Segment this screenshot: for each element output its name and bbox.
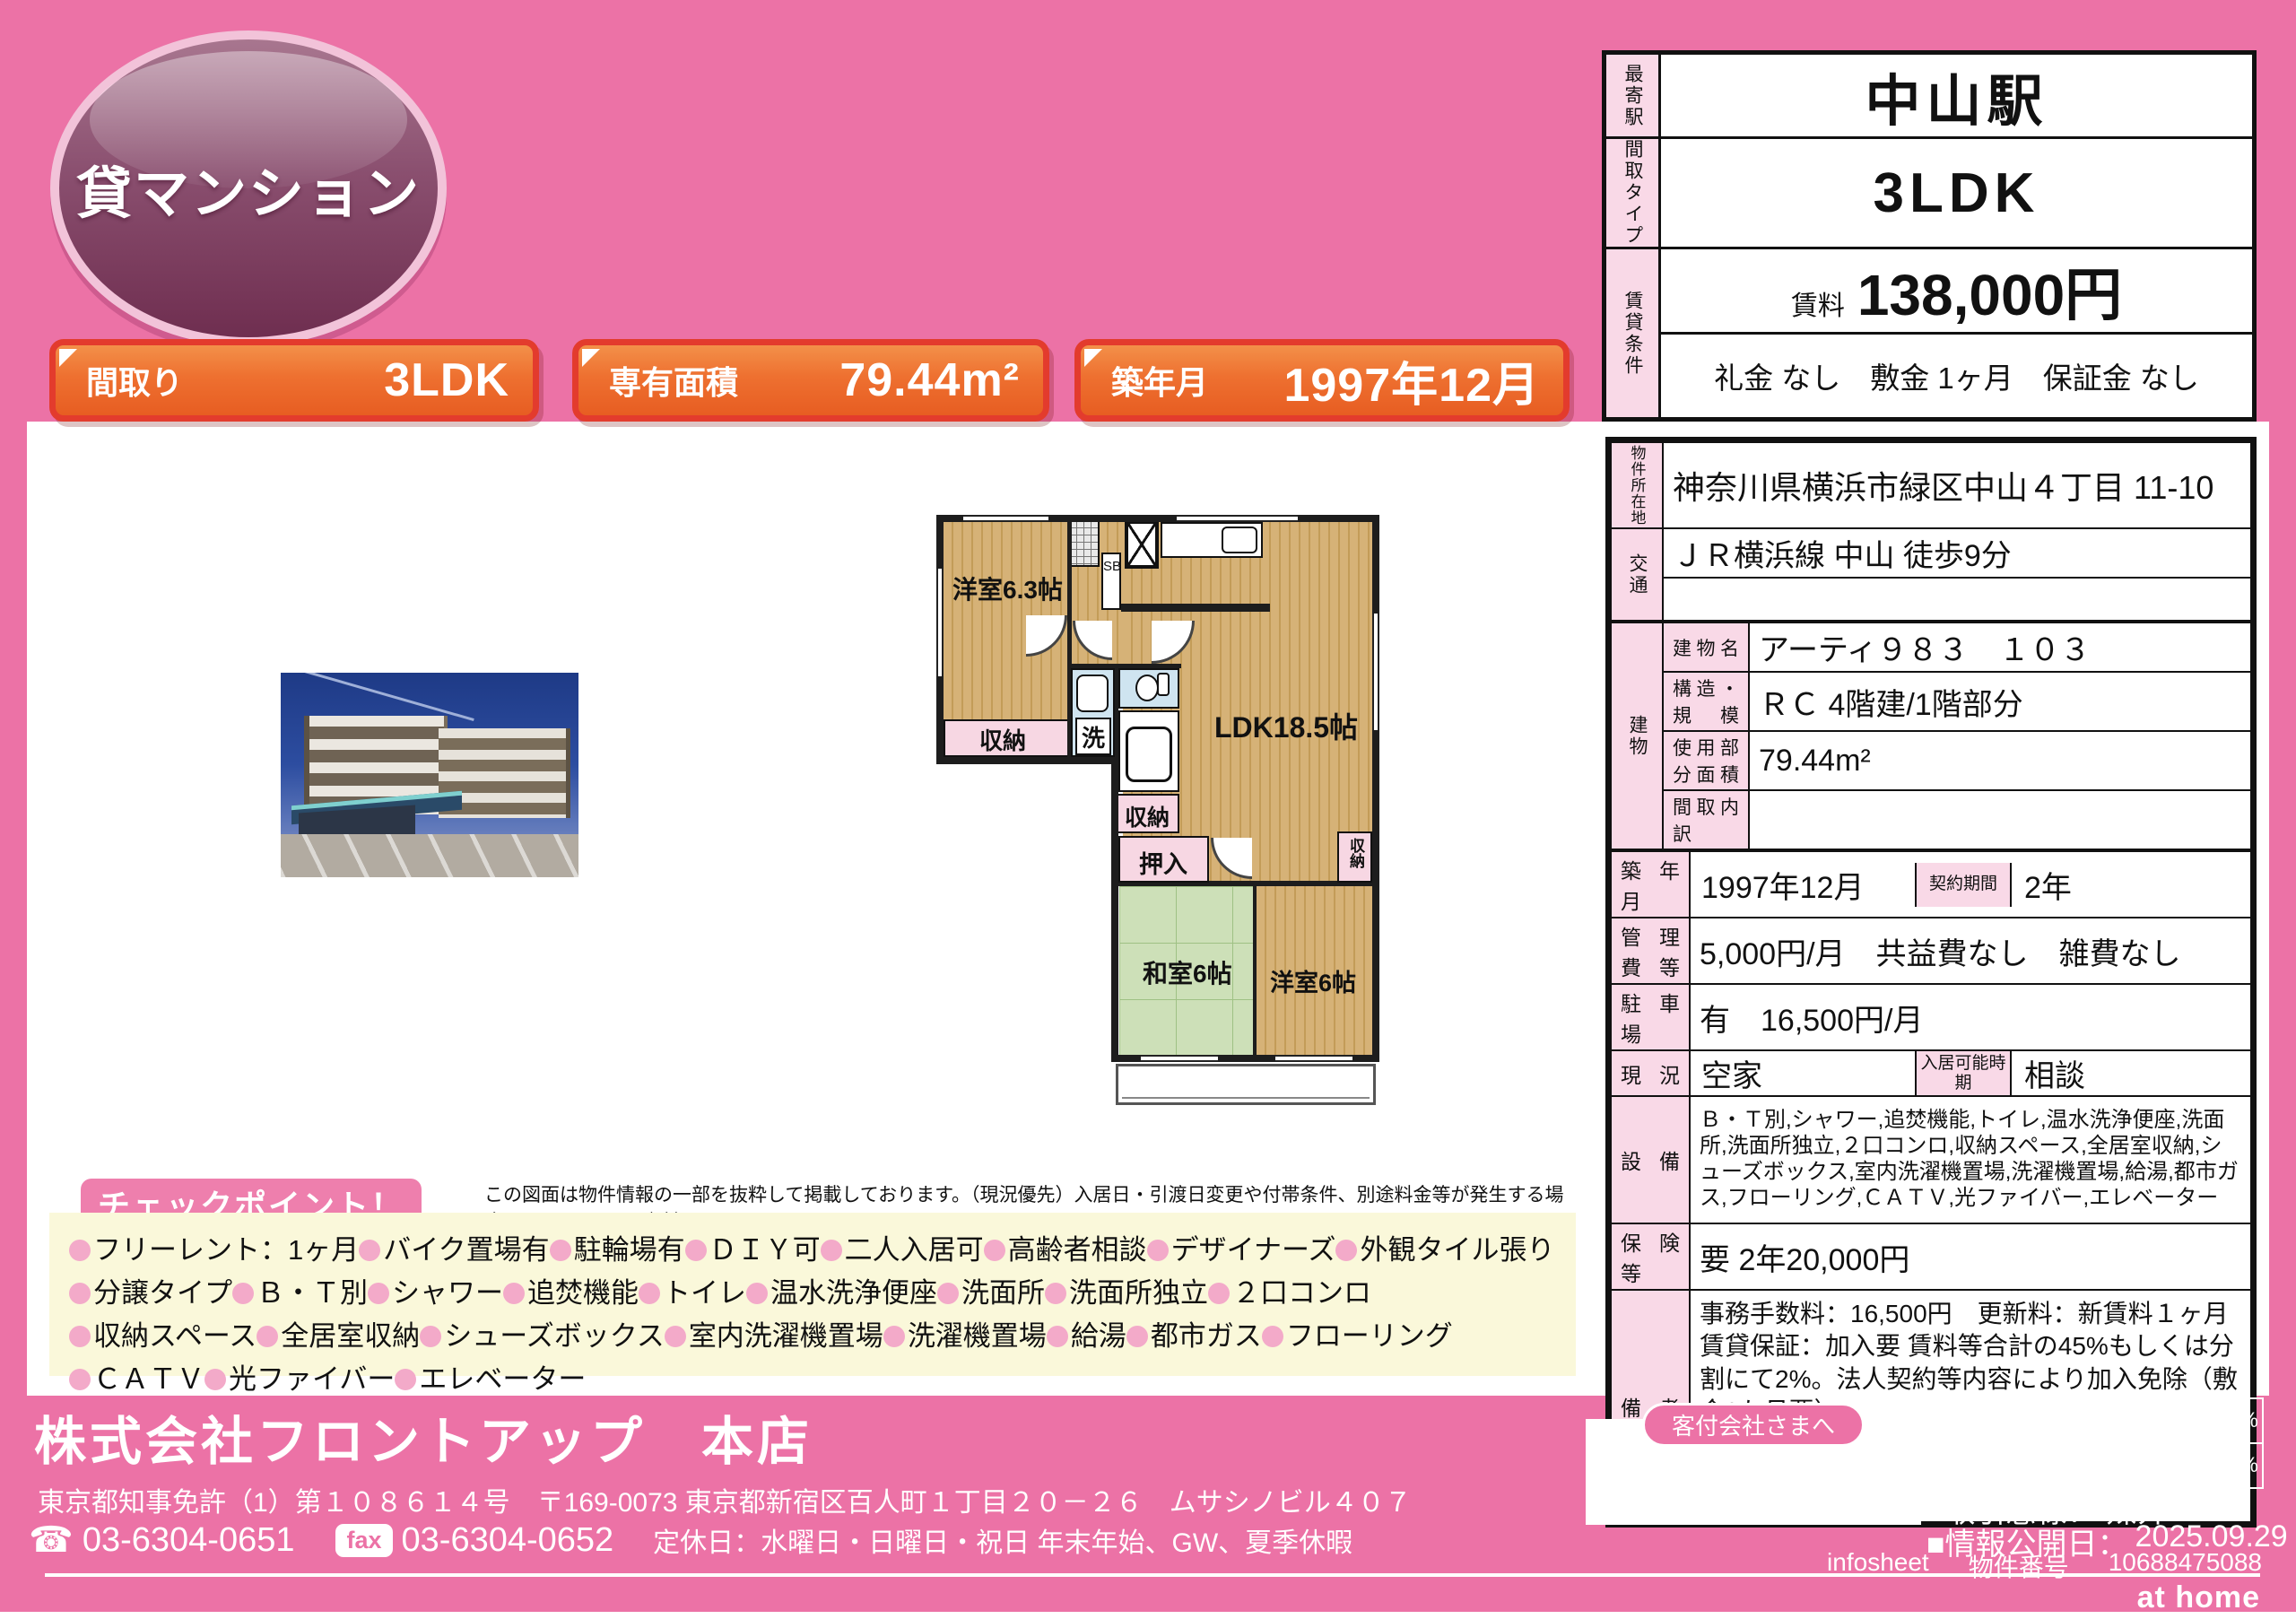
row-building-name: 建物 建物名 アーティ９８３ １０３ (1611, 622, 2251, 672)
bullet-dot-icon (232, 1283, 254, 1304)
status-label: 現況 (1611, 1050, 1690, 1096)
fp-toilet-tank (1157, 673, 1170, 696)
bullet-dot-icon (665, 1326, 686, 1347)
built-label: 築年月 (1611, 851, 1690, 918)
fp-wall (1372, 515, 1379, 1062)
row-equipment: 設備 Ｂ・Ｔ別,シャワー,追焚機能,トイレ,温水洗浄便座,洗面所,洗面所独立,２… (1611, 1096, 2251, 1223)
bullet-dot-icon (1262, 1326, 1283, 1347)
fp-oshiire-label: 押入 (1139, 845, 1187, 880)
company-name: 株式会社フロントアップ 本店 (34, 1399, 813, 1475)
structure-label: 構造・規模 (1663, 672, 1749, 731)
bullet-dot-icon (69, 1283, 91, 1304)
bullet-dot-icon (69, 1369, 91, 1390)
fp-ldk-label: LDK18.5帖 (1214, 705, 1358, 746)
fee-row-burden: 客付手数料負担の割合 貸主 0% 借主 100% (1965, 1398, 2263, 1443)
summary-station-label: 最寄駅 (1605, 53, 1660, 138)
equipment-value: Ｂ・Ｔ別,シャワー,追焚機能,トイレ,温水洗浄便座,洗面所,洗面所独立,２口コン… (1690, 1096, 2251, 1223)
checkpoint-item: 洗濯機置場 (883, 1320, 1047, 1352)
structure-value: ＲＣ 4階建/1階部分 (1749, 672, 2251, 731)
fp-window (1177, 515, 1298, 522)
fp-window (1275, 1055, 1352, 1062)
checkpoint-item: 駐輪場有 (550, 1234, 685, 1266)
insurance-value: 要 2年20,000円 (1690, 1223, 2251, 1290)
bullet-dot-icon (1335, 1240, 1357, 1261)
holidays-text: 定休日：水曜日・日曜日・祝日 年末年始、GW、夏季休暇 (653, 1520, 1352, 1560)
bullet-dot-icon (821, 1240, 842, 1261)
checkpoint-item: ＤＩＹ可 (685, 1234, 821, 1266)
bullet-dot-icon (420, 1326, 441, 1347)
checkpoint-item: 追焚機能 (503, 1277, 639, 1309)
movein-label: 入居可能時期 (1915, 1051, 2012, 1095)
corner-fold (1084, 349, 1102, 367)
status-value: 空家 (1691, 1051, 1915, 1095)
bullet-dot-icon (395, 1369, 416, 1390)
checkpoint-item: Ｂ・Ｔ別 (232, 1277, 368, 1309)
row-access-2 (1611, 578, 2251, 621)
checkpoint-items: フリーレント：1ヶ月バイク置場有駐輪場有ＤＩＹ可二人入居可高齢者相談デザイナーズ… (69, 1229, 1556, 1401)
bullet-dot-icon (69, 1240, 91, 1261)
bullet-dot-icon (1208, 1283, 1230, 1304)
building-name-value: アーティ９８３ １０３ (1749, 622, 2251, 672)
company-license: 東京都知事免許（1）第１０８６１４号 〒169-0073 東京都新宿区百人町１丁… (38, 1480, 1412, 1519)
equipment-label: 設備 (1611, 1096, 1690, 1223)
checkpoint-item: 外観タイル張り (1335, 1234, 1554, 1266)
status-cell: 空家 入居可能時期 相談 (1690, 1050, 2251, 1096)
bullet-dot-icon (685, 1240, 707, 1261)
fp-shoebox: SB (1101, 553, 1121, 610)
checkpoint-box: フリーレント：1ヶ月バイク置場有駐輪場有ＤＩＹ可二人入居可高齢者相談デザイナーズ… (49, 1213, 1576, 1376)
bar-area-value: 79.44m² (839, 353, 1020, 407)
fee-burden-tag2: 借主 (2162, 1398, 2199, 1443)
fp-toilet (1135, 675, 1159, 701)
bullet-dot-icon (1147, 1240, 1169, 1261)
term-value: 2年 (2012, 863, 2250, 907)
summary-conditions: 礼金 なし 敷金 1ヶ月 保証金 なし (1660, 334, 2255, 420)
bar-built-label: 築年月 (1111, 357, 1208, 404)
access-label: 交通 (1611, 528, 1663, 621)
fp-balcony (1116, 1064, 1376, 1105)
fp-wall (936, 757, 1118, 764)
building-photo (281, 673, 578, 877)
parking-value: 有 16,500円/月 (1690, 984, 2251, 1050)
checkpoint-item: 収納スペース (69, 1320, 257, 1352)
layout-detail-label: 間取内訳 (1663, 790, 1749, 849)
corner-fold (582, 349, 600, 367)
fp-genkan (1067, 518, 1100, 567)
fp-window (963, 515, 1048, 522)
fp-window (936, 569, 944, 676)
fee-split-tag1: 元付 (2085, 1443, 2122, 1488)
bar-area: 専有面積 79.44m² (572, 339, 1049, 422)
bullet-dot-icon (359, 1240, 380, 1261)
summary-type-label: 間取タイプ (1605, 138, 1660, 248)
floor-area-value: 79.44m² (1749, 731, 2251, 790)
checkpoint-item: ２口コンロ (1208, 1277, 1371, 1309)
checkpoint-item: フリーレント：1ヶ月 (69, 1234, 359, 1266)
summary-table: 最寄駅 中山駅 間取タイプ 3LDK 賃貸条件 賃料138,000円 礼金 なし… (1602, 50, 2257, 422)
bullet-dot-icon (503, 1283, 525, 1304)
fp-vanity (1076, 675, 1109, 712)
bullet-dot-icon (984, 1240, 1005, 1261)
row-insurance: 保険等 要 2年20,000円 (1611, 1223, 2251, 1290)
bar-built: 築年月 1997年12月 (1074, 339, 1570, 422)
row-floor-area: 使用部分面積 79.44m² (1611, 731, 2251, 790)
bullet-dot-icon (639, 1283, 660, 1304)
summary-cond-label: 賃貸条件 (1605, 248, 1660, 420)
building-label: 建物 (1611, 622, 1663, 849)
property-number-label: 物件番号 (1969, 1548, 2069, 1584)
floor-area-label: 使用部分面積 (1663, 731, 1749, 790)
bullet-dot-icon (746, 1283, 768, 1304)
checkpoint-item: 都市ガス (1126, 1320, 1262, 1352)
location-label: 物件所在地 (1611, 442, 1663, 528)
square-mark (1928, 1399, 1948, 1419)
bullet-dot-icon (1045, 1283, 1066, 1304)
rent-value: 138,000円 (1857, 263, 2122, 327)
infosheet-label: infosheet (1827, 1548, 1929, 1584)
fees-value: 5,000円/月 共益費なし 雑費なし (1690, 918, 2251, 984)
fp-room1-label: 洋室6.3帖 (952, 570, 1063, 606)
bullet-dot-icon (550, 1240, 571, 1261)
fp-window (1141, 1055, 1218, 1062)
checkpoint-item: 給湯 (1047, 1320, 1126, 1352)
agent-box-label: 客付会社さまへ (1642, 1403, 1865, 1447)
built-cell: 1997年12月 契約期間 2年 (1690, 851, 2251, 918)
row-access-1: 交通 ＪＲ横浜線 中山 徒歩9分 (1611, 528, 2251, 578)
checkpoint-item: シャワー (368, 1277, 503, 1309)
bar-layout-label: 間取り (86, 357, 183, 404)
fp-washitsu-label: 和室6帖 (1143, 954, 1232, 990)
tel-number: 03-6304-0651 (83, 1521, 295, 1560)
summary-rent: 賃料138,000円 (1660, 248, 2255, 334)
fee-burden-label: 客付手数料負担の割合 (1965, 1398, 2085, 1443)
fee-row-split: 客付手数料配分の割合 元付 0% 客付 100% (1965, 1443, 2263, 1488)
badge-label: 貸マンション (59, 39, 438, 337)
property-type-badge: 貸マンション (50, 30, 447, 346)
row-status: 現況 空家 入居可能時期 相談 (1611, 1050, 2251, 1096)
power-line (281, 673, 474, 721)
bullet-dot-icon (1126, 1326, 1148, 1347)
bullet-dot-icon (937, 1283, 959, 1304)
checkpoint-item: 洗面所独立 (1045, 1277, 1208, 1309)
rent-unit-label: 賃料 (1791, 292, 1845, 321)
bullet-dot-icon (1047, 1326, 1068, 1347)
bottom-strip (0, 1612, 2296, 1619)
bullet-dot-icon (204, 1369, 226, 1390)
fp-washer: 洗 (1075, 718, 1111, 755)
row-location: 物件所在地 神奈川県横浜市緑区中山４丁目 11-10 (1611, 442, 2251, 528)
athome-logo: at home (2137, 1580, 2260, 1615)
fee-table: 客付手数料負担の割合 貸主 0% 借主 100% 客付手数料配分の割合 元付 0… (1964, 1397, 2264, 1489)
agent-memo-box: 客付会社さまへ (1586, 1419, 1921, 1525)
fee-split-tag2: 客付 (2162, 1443, 2199, 1488)
fee-split-val2: 100% (2199, 1443, 2263, 1488)
summary-type-value: 3LDK (1660, 138, 2255, 248)
fees-label: 管理費等 (1611, 918, 1690, 984)
checkpoint-item: エレベーター (395, 1363, 586, 1395)
fee-burden-val1: 0% (2122, 1398, 2162, 1443)
infosheet-row: infosheet 物件番号 10688475088 (1827, 1548, 2262, 1584)
bar-layout-value: 3LDK (384, 353, 509, 407)
bar-built-value: 1997年12月 (1283, 347, 1540, 414)
fee-burden-val2: 100% (2199, 1398, 2263, 1443)
property-number-value: 10688475088 (2109, 1548, 2262, 1584)
detail-table: 物件所在地 神奈川県横浜市緑区中山４丁目 11-10 交通 ＪＲ横浜線 中山 徒… (1605, 437, 2257, 1528)
corner-fold (59, 349, 77, 367)
floor-plan: SB 洗 洋室6.3帖 収納 LDK18.5帖 収納 押入 和室6帖 洋室6 (936, 515, 1379, 1110)
phone-icon: ☎ (29, 1519, 74, 1561)
checkpoint-item: 温水洗浄便座 (746, 1277, 937, 1309)
insurance-label: 保険等 (1611, 1223, 1690, 1290)
building-name-label: 建物名 (1663, 622, 1749, 672)
road-foreground (281, 834, 578, 877)
parking-label: 駐車場 (1611, 984, 1690, 1050)
checkpoint-item: 室内洗濯機置場 (665, 1320, 883, 1352)
fp-balcony-rail (1122, 1097, 1370, 1099)
term-label: 契約期間 (1915, 863, 2012, 907)
bullet-dot-icon (883, 1326, 905, 1347)
built-value: 1997年12月 (1691, 863, 1915, 907)
fp-closet3-label: 収納 (1344, 838, 1367, 868)
movein-value: 相談 (2012, 1051, 2250, 1095)
fp-wall (1111, 757, 1118, 1062)
checkpoint-item: 全居室収納 (257, 1320, 420, 1352)
fp-window (1372, 614, 1379, 730)
footer-divider (45, 1573, 2260, 1577)
row-layout-detail: 間取内訳 (1611, 790, 2251, 849)
location-value: 神奈川県横浜市緑区中山４丁目 11-10 (1663, 442, 2251, 528)
fp-sink (1222, 527, 1257, 553)
summary-station-value: 中山駅 (1660, 53, 2255, 138)
fp-shaft (1125, 520, 1159, 569)
checkpoint-item: 二人入居可 (821, 1234, 984, 1266)
checkpoint-item: デザイナーズ (1147, 1234, 1336, 1266)
fee-burden-tag1: 貸主 (2085, 1398, 2122, 1443)
checkpoint-item: 分譲タイプ (69, 1277, 232, 1309)
fp-closet1-label: 収納 (979, 723, 1026, 756)
row-parking: 駐車場 有 16,500円/月 (1611, 984, 2251, 1050)
row-fees: 管理費等 5,000円/月 共益費なし 雑費なし (1611, 918, 2251, 984)
fee-split-val1: 0% (2122, 1443, 2162, 1488)
checkpoint-item: フローリング (1262, 1320, 1453, 1352)
checkpoint-item: 高齢者相談 (984, 1234, 1147, 1266)
row-structure: 構造・規模 ＲＣ 4階建/1階部分 (1611, 672, 2251, 731)
fax-number: 03-6304-0652 (402, 1521, 614, 1560)
bar-layout: 間取り 3LDK (49, 339, 539, 422)
fp-closet2-label: 収納 (1125, 800, 1170, 832)
checkpoint-item: 光ファイバー (204, 1363, 395, 1395)
fee-split-label: 客付手数料配分の割合 (1965, 1443, 2085, 1488)
row-built: 築年月 1997年12月 契約期間 2年 (1611, 851, 2251, 918)
company-contact-row: ☎ 03-6304-0651 fax 03-6304-0652 定休日：水曜日・… (29, 1519, 1352, 1561)
fax-icon: fax (335, 1524, 392, 1557)
layout-detail-value (1749, 790, 2251, 849)
bullet-dot-icon (69, 1326, 91, 1347)
checkpoint-item: 洗面所 (937, 1277, 1045, 1309)
checkpoint-item: ＣＡＴＶ (69, 1363, 204, 1395)
access-value-1: ＪＲ横浜線 中山 徒歩9分 (1663, 528, 2251, 578)
checkpoint-item: トイレ (639, 1277, 746, 1309)
access-value-2 (1663, 578, 2251, 621)
checkpoint-item: シューズボックス (420, 1320, 665, 1352)
checkpoint-item: バイク置場有 (359, 1234, 549, 1266)
fp-room2-label: 洋室6帖 (1270, 963, 1356, 998)
fp-wall (1121, 604, 1270, 612)
fp-bathtub (1126, 727, 1172, 782)
bar-area-label: 専有面積 (609, 357, 738, 404)
bullet-dot-icon (257, 1326, 278, 1347)
bullet-dot-icon (368, 1283, 389, 1304)
